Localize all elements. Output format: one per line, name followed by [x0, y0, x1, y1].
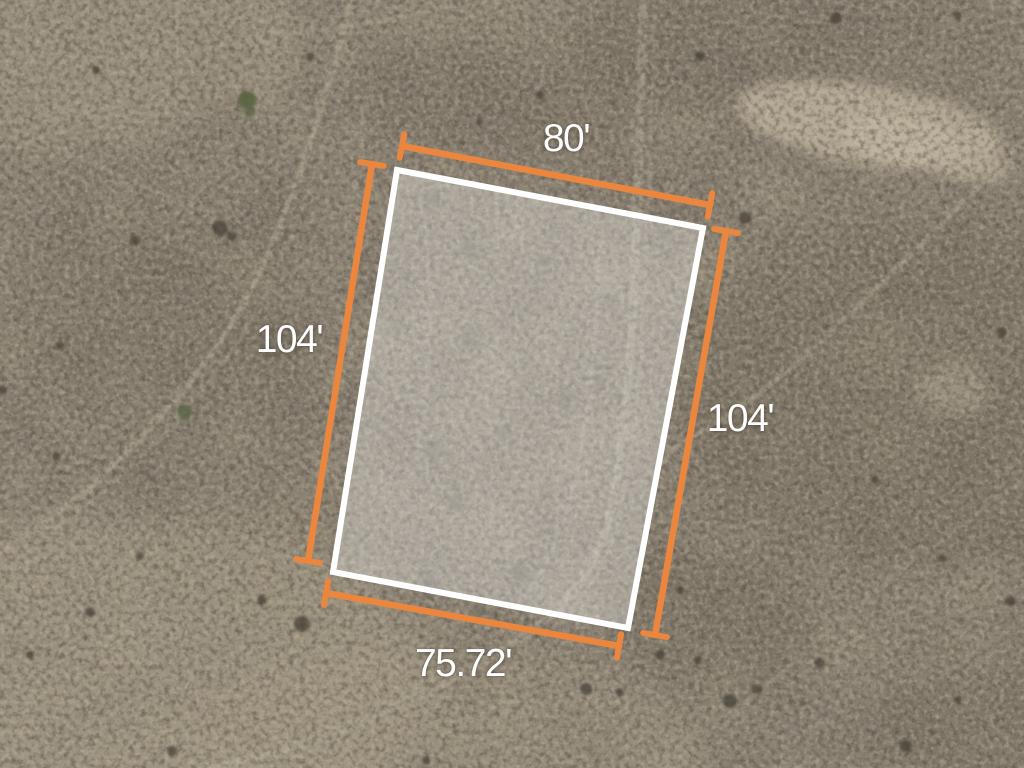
dimension-label-left: 104' [256, 318, 323, 362]
dimension-label-right: 104' [707, 397, 774, 441]
terrain-canvas [0, 0, 1024, 768]
dimension-label-top: 80' [543, 117, 589, 161]
satellite-map-view: 80' 104' 104' 75.72' [0, 0, 1024, 768]
dimension-label-bottom: 75.72' [415, 642, 511, 686]
